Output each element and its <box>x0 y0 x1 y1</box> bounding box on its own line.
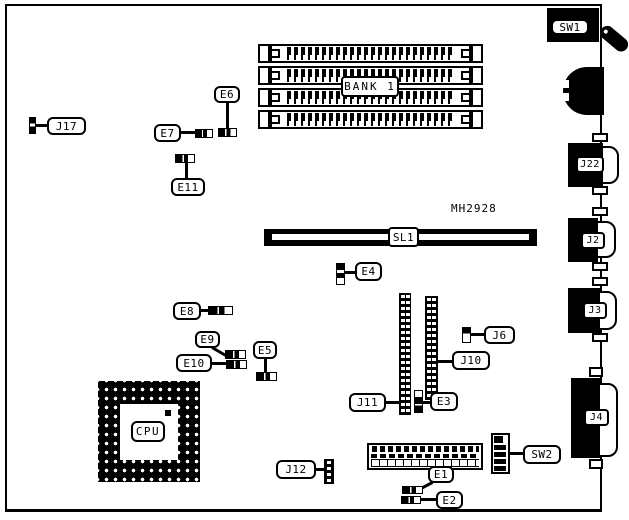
jumper-e11 <box>175 154 195 163</box>
label-j22: J22 <box>576 156 604 173</box>
label-e2: E2 <box>436 491 463 509</box>
cpu-pin1-mark <box>165 410 171 416</box>
j2-mount-tab-bottom <box>592 262 608 271</box>
jumper-e8 <box>208 306 233 315</box>
j22-mount-tab-top <box>592 133 608 142</box>
j4-mount-tab-bottom <box>589 459 603 469</box>
lead-e2 <box>420 498 437 501</box>
jumper-e2 <box>401 496 421 504</box>
connector-j17 <box>29 117 36 134</box>
label-j2: J2 <box>581 232 605 249</box>
label-e9: E9 <box>195 331 220 348</box>
label-j10: J10 <box>452 351 490 370</box>
label-e11: E11 <box>171 178 205 196</box>
label-j12: J12 <box>276 460 316 479</box>
dip-switch-sw2 <box>491 433 510 474</box>
label-j4: J4 <box>584 409 609 426</box>
lead-j11 <box>385 401 400 404</box>
header-j10 <box>425 296 438 400</box>
power-connector <box>367 443 483 470</box>
label-sw1: SW1 <box>551 19 589 35</box>
jumper-e5 <box>256 372 277 381</box>
lead-e6 <box>226 102 229 129</box>
label-j11: J11 <box>349 393 386 412</box>
jumper-e6 <box>218 128 237 137</box>
label-sl1: SL1 <box>388 227 419 247</box>
label-bank1: BANK 1 <box>341 76 399 97</box>
header-j11 <box>399 293 411 415</box>
label-sw2: SW2 <box>523 445 561 464</box>
j2-mount-tab-top <box>592 207 608 216</box>
simm-socket-1 <box>258 44 483 63</box>
j3-mount-tab-bottom <box>592 333 608 342</box>
label-e3: E3 <box>430 392 458 411</box>
jumper-e7 <box>195 129 213 138</box>
motherboard-diagram: SW1 J22 J2 J3 J4 BANK 1 <box>0 0 629 520</box>
jumper-e1 <box>402 486 423 494</box>
label-j6: J6 <box>484 326 515 344</box>
label-cpu: CPU <box>131 421 165 442</box>
j22-mount-tab-bottom <box>592 186 608 195</box>
label-e6: E6 <box>214 86 240 103</box>
j4-mount-tab-top <box>589 367 603 377</box>
keylock-icon <box>597 23 629 54</box>
label-e1: E1 <box>428 466 454 483</box>
jumper-e3 <box>414 390 423 413</box>
label-e8: E8 <box>173 302 201 320</box>
header-j12 <box>324 459 334 484</box>
simm-socket-4 <box>258 110 483 129</box>
label-e7: E7 <box>154 124 181 142</box>
label-e5: E5 <box>253 341 277 359</box>
label-j17: J17 <box>47 117 86 135</box>
jumper-e4 <box>336 263 345 285</box>
din-connector <box>563 67 604 115</box>
jumper-e9 <box>225 350 246 359</box>
j3-mount-tab-top <box>592 277 608 286</box>
label-e10: E10 <box>176 354 212 372</box>
label-e4: E4 <box>355 262 382 281</box>
lead-e7 <box>179 131 196 134</box>
part-number: MH2928 <box>451 202 497 215</box>
jumper-j6 <box>462 327 471 343</box>
jumper-e10 <box>226 360 247 369</box>
label-j3: J3 <box>583 302 607 319</box>
